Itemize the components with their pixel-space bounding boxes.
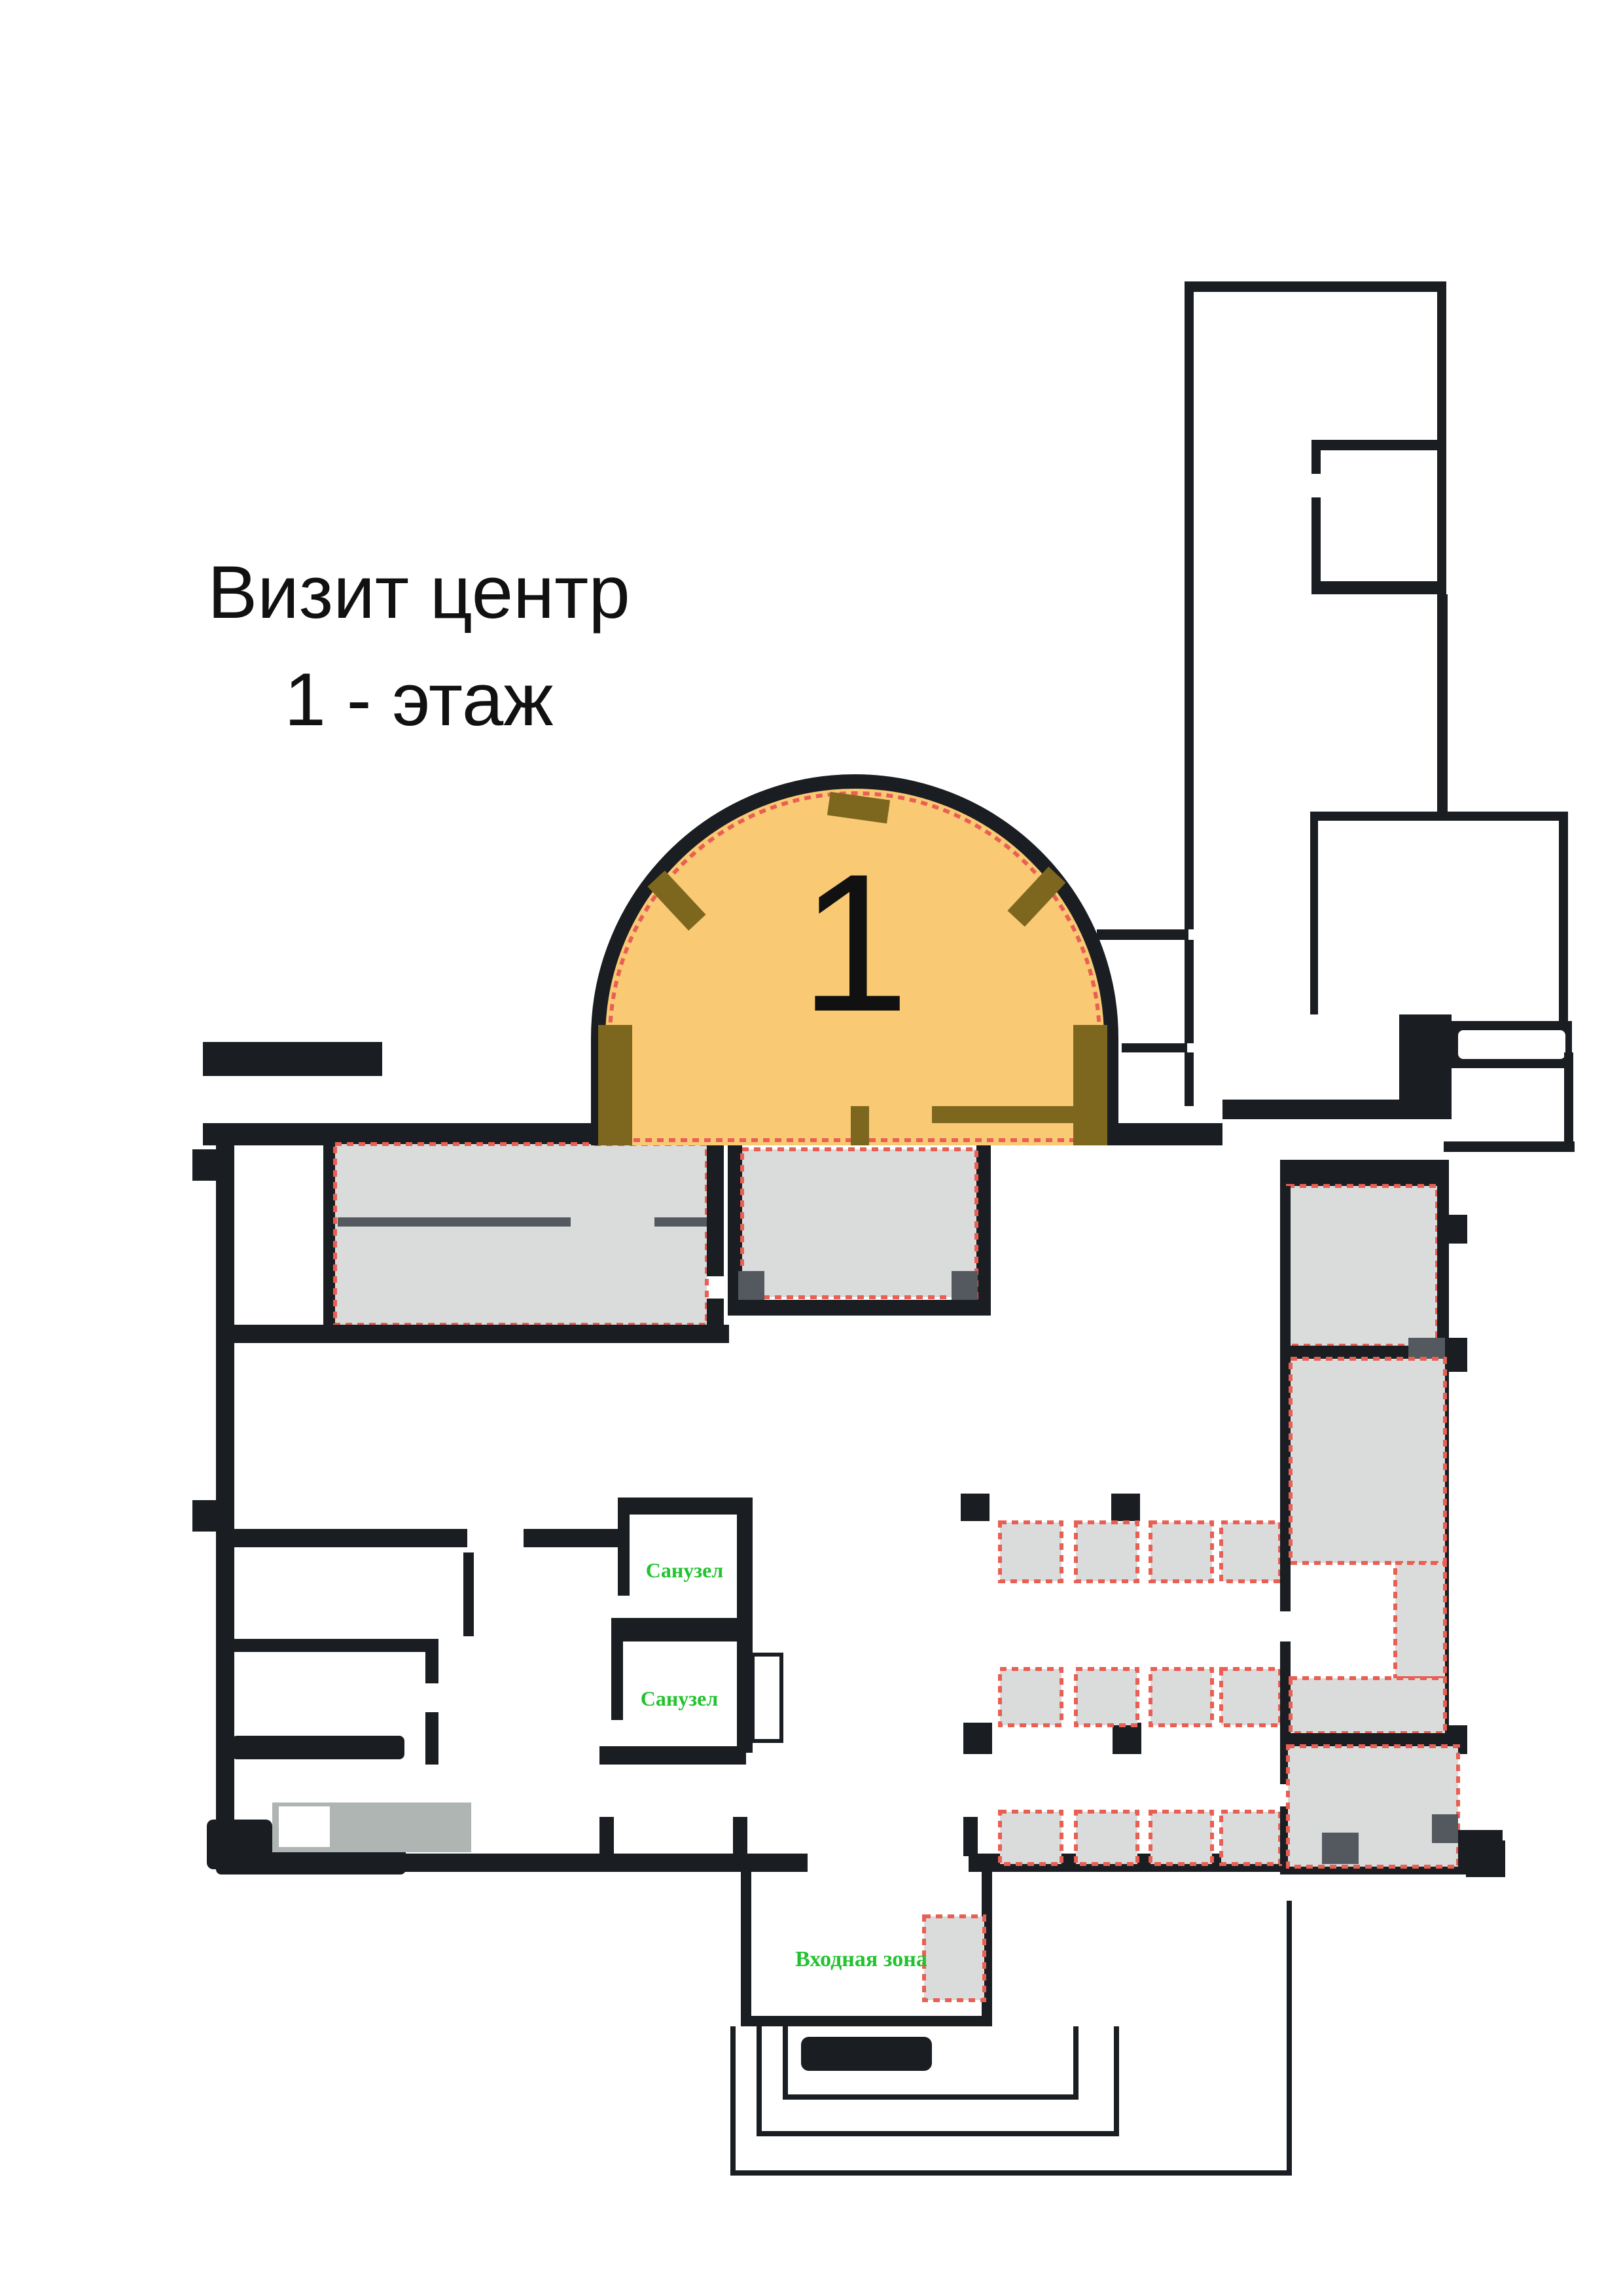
floor-plan-canvas: Визит центр 1 - этаж bbox=[0, 0, 1623, 2296]
table bbox=[1221, 1669, 1280, 1725]
wall-segment bbox=[1311, 440, 1446, 450]
wall-stub bbox=[963, 1817, 978, 1856]
wall-segment bbox=[1559, 812, 1568, 1052]
entrance-mat bbox=[801, 2037, 932, 2071]
table bbox=[1221, 1812, 1280, 1864]
wall-segment bbox=[216, 1325, 729, 1343]
table bbox=[1221, 1522, 1280, 1581]
table bbox=[1076, 1669, 1137, 1725]
wall-segment bbox=[524, 1529, 622, 1547]
dome-porch bbox=[728, 1145, 991, 1316]
wall-segment bbox=[216, 1529, 467, 1547]
wall-segment bbox=[741, 2016, 992, 2026]
tables-grid bbox=[1000, 1522, 1280, 1864]
right-rooms-column bbox=[1280, 1160, 1503, 1874]
gray-room bbox=[1288, 1186, 1437, 1346]
table bbox=[1000, 1669, 1061, 1725]
wall-segment bbox=[1444, 1141, 1575, 1152]
reception-desk bbox=[272, 1803, 471, 1852]
column bbox=[963, 1723, 992, 1754]
wall-stub bbox=[733, 1817, 747, 1856]
wall-segment bbox=[611, 1641, 623, 1720]
wall-segment bbox=[1311, 581, 1446, 594]
column bbox=[1111, 1494, 1140, 1521]
page-title-line1: Визит центр bbox=[207, 551, 630, 634]
wall-segment bbox=[1280, 1160, 1445, 1186]
wall-stub bbox=[599, 1817, 614, 1856]
wall-segment bbox=[1097, 929, 1188, 940]
wall-segment bbox=[728, 1300, 991, 1316]
title-block: Визит центр 1 - этаж bbox=[207, 551, 630, 742]
wall-segment bbox=[611, 1618, 742, 1641]
table bbox=[1150, 1669, 1212, 1725]
page-title-line2: 1 - этаж bbox=[285, 658, 554, 742]
wall-segment bbox=[425, 1712, 438, 1765]
column bbox=[1113, 1723, 1141, 1754]
gray-room bbox=[1288, 1746, 1458, 1867]
table bbox=[1150, 1812, 1212, 1864]
gray-room bbox=[335, 1144, 707, 1325]
bathroom-fixture bbox=[753, 1655, 781, 1741]
wall-segment bbox=[599, 1746, 746, 1765]
dome-room-1: 1 bbox=[598, 781, 1111, 1145]
pilaster bbox=[192, 1149, 216, 1181]
bathroom2-label: Санузел bbox=[641, 1687, 719, 1710]
wall-segment bbox=[1440, 594, 1448, 812]
wall-segment bbox=[1222, 1100, 1402, 1119]
bathrooms-block: Санузел Санузел bbox=[599, 1498, 781, 1765]
wall-segment bbox=[1185, 281, 1446, 292]
wall-segment bbox=[1311, 497, 1321, 586]
wall-stub bbox=[463, 1552, 474, 1636]
pilaster bbox=[192, 1500, 219, 1532]
dome-side-wall bbox=[1073, 1025, 1107, 1145]
wall-segment bbox=[1310, 812, 1568, 821]
wall-segment bbox=[618, 1498, 746, 1515]
desk-opening bbox=[279, 1806, 330, 1847]
entrance-zone: Входная зона bbox=[733, 1872, 1289, 2173]
porch-corner-block bbox=[952, 1271, 978, 1300]
table bbox=[1150, 1522, 1212, 1581]
corner-block bbox=[1322, 1833, 1359, 1864]
pilaster bbox=[1449, 1215, 1467, 1244]
wing-top-right bbox=[1097, 281, 1575, 1225]
table bbox=[1000, 1812, 1061, 1864]
dome-inner-wall bbox=[932, 1106, 1073, 1123]
wall-segment bbox=[425, 1639, 438, 1683]
wall-segment bbox=[216, 1639, 438, 1652]
wall-segment bbox=[976, 1145, 991, 1305]
table bbox=[1076, 1522, 1137, 1581]
corner-block bbox=[1432, 1814, 1458, 1843]
pilaster bbox=[1449, 1338, 1467, 1372]
wall-segment bbox=[618, 1515, 630, 1596]
corner-block bbox=[1458, 1830, 1503, 1874]
wall-segment bbox=[1311, 450, 1321, 474]
wall-segment bbox=[1185, 940, 1194, 1043]
niche bbox=[1458, 1030, 1565, 1059]
table bbox=[1076, 1812, 1137, 1864]
dome-inner-wall bbox=[851, 1106, 869, 1145]
table bbox=[1000, 1522, 1061, 1581]
gray-room bbox=[1395, 1563, 1445, 1678]
wall-segment bbox=[1310, 821, 1318, 1014]
column bbox=[961, 1494, 990, 1521]
gray-room bbox=[1291, 1359, 1445, 1563]
left-wing-rooms bbox=[216, 1141, 729, 1765]
bathroom1-label: Санузел bbox=[646, 1558, 724, 1582]
floor-plan-page: Визит центр 1 - этаж bbox=[0, 0, 1623, 2296]
room-divider-line bbox=[338, 1217, 571, 1227]
dome-side-wall bbox=[598, 1025, 632, 1145]
gray-room bbox=[1291, 1678, 1445, 1733]
wall-segment bbox=[1185, 281, 1194, 929]
dome-room-number: 1 bbox=[800, 833, 910, 1052]
wall-segment bbox=[741, 1872, 751, 2026]
wall-segment bbox=[707, 1299, 724, 1327]
wall-segment bbox=[232, 1736, 404, 1759]
room-divider-line bbox=[654, 1217, 707, 1227]
porch-platform bbox=[742, 1149, 976, 1297]
wall-segment bbox=[399, 1854, 808, 1872]
wall-segment bbox=[707, 1141, 724, 1276]
porch-corner-block bbox=[738, 1271, 764, 1300]
wall-segment bbox=[1185, 1052, 1194, 1106]
wall-segment bbox=[1564, 1052, 1573, 1149]
wall-segment bbox=[1122, 1043, 1187, 1052]
entrance-mat-zone bbox=[924, 1916, 984, 2000]
wall-segment bbox=[216, 1123, 234, 1869]
wall-segment bbox=[203, 1042, 382, 1076]
entrance-label: Входная зона bbox=[795, 1947, 927, 1971]
